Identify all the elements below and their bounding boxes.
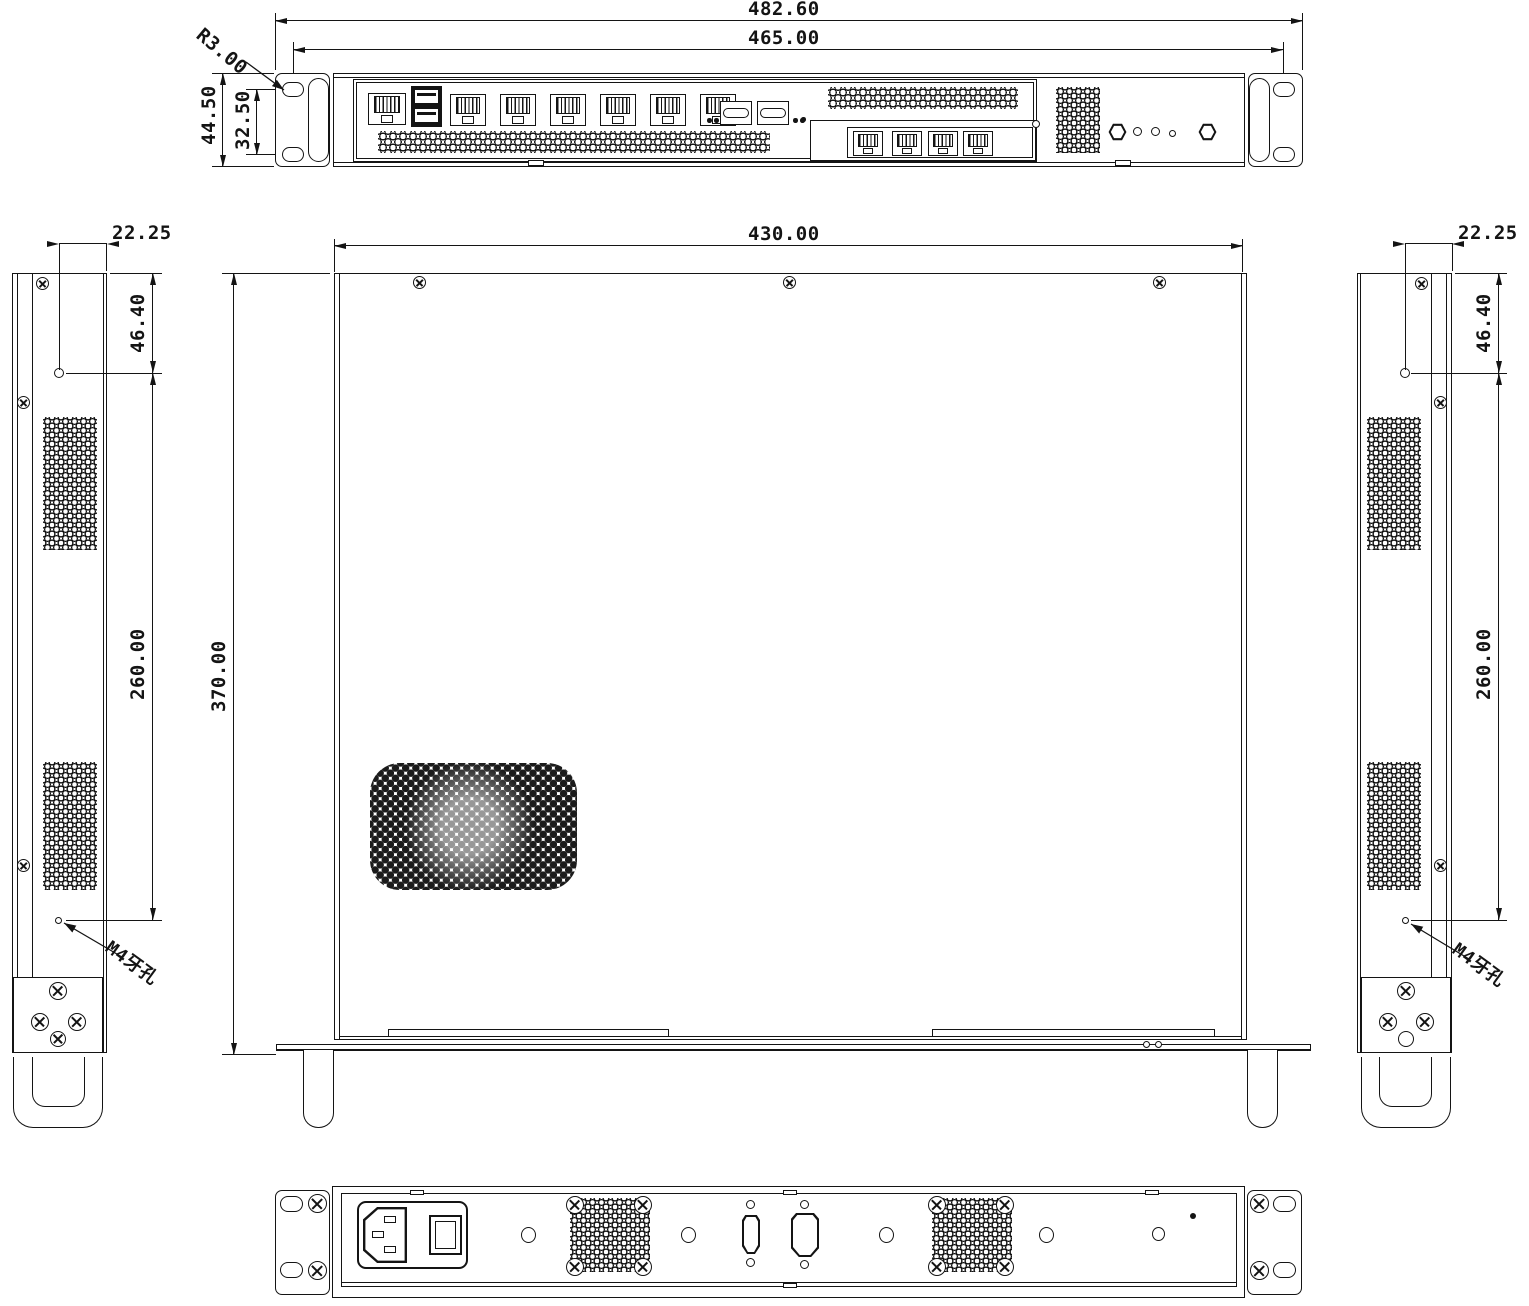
dim-offset: 22.25 — [1458, 222, 1518, 244]
grille-screw — [928, 1258, 946, 1276]
front-honeycomb-vent — [1056, 87, 1100, 153]
front-body-inner-top-line — [334, 77, 1244, 78]
grille-screw — [566, 1258, 584, 1276]
m4-thread-label: M4牙孔 — [101, 934, 165, 990]
panel-tab — [783, 1283, 797, 1288]
panel-tab — [1115, 160, 1131, 166]
standoff-hole — [800, 1260, 809, 1269]
extension-line — [1405, 243, 1406, 370]
dim-arrow — [150, 908, 156, 920]
dim-arrow — [1271, 47, 1283, 53]
dim-line-front-hole — [152, 273, 153, 373]
console-cutout-small — [742, 1215, 760, 1254]
m4-thread-hole-rear — [55, 917, 62, 924]
ear-handle-slot — [308, 78, 329, 162]
rj45-expansion-port-1 — [853, 131, 883, 156]
status-led — [1151, 127, 1160, 136]
front-flange-bottom-line — [276, 1049, 1311, 1051]
extension-line — [275, 13, 276, 70]
side-fold-line — [1446, 274, 1447, 1052]
db9-cutout — [791, 1213, 819, 1257]
extension-line — [66, 373, 162, 374]
ear-screw — [1250, 1261, 1269, 1280]
mount-slot — [282, 82, 304, 97]
thumbscrew-notch — [1032, 120, 1040, 128]
dim-front-hole: 46.40 — [1473, 293, 1495, 353]
side-screw — [17, 396, 30, 409]
side-screw — [1434, 859, 1447, 872]
extension-line — [66, 920, 162, 921]
sfp-cage-1 — [720, 101, 752, 125]
dim-line-offset — [59, 243, 107, 244]
extension-line — [1242, 239, 1243, 272]
dim-arrow — [254, 89, 260, 101]
mount-slot — [1273, 147, 1295, 162]
bracket-screw — [50, 1031, 66, 1047]
dim-arrow — [231, 273, 237, 285]
extension-line — [1452, 243, 1453, 271]
dim-line-overall-width — [275, 20, 1303, 21]
side-fold-line — [17, 274, 18, 1052]
side-screw — [17, 859, 30, 872]
dim-arrow — [150, 361, 156, 373]
dim-arrow — [1496, 273, 1502, 285]
status-led — [1169, 130, 1176, 137]
dim-arrow — [220, 73, 226, 85]
usb-port — [414, 108, 439, 123]
rj45-lan-port-4 — [600, 94, 636, 126]
dim-arrow — [1496, 908, 1502, 920]
bracket-screw — [49, 982, 67, 1000]
rj45-expansion-port-2 — [892, 131, 922, 156]
extension-line — [106, 243, 107, 271]
extension-line — [222, 273, 330, 274]
dim-top-width: 430.00 — [748, 223, 820, 245]
pilot-hole — [1190, 1213, 1196, 1219]
ear-handle-left — [303, 1050, 334, 1128]
sfp-cage-2 — [757, 101, 789, 125]
mount-slot — [280, 1196, 303, 1212]
bracket-hole — [1398, 1031, 1414, 1047]
mount-slot — [1273, 82, 1295, 97]
dim-line-top-depth — [233, 273, 234, 1055]
mount-slot — [280, 1262, 303, 1278]
status-led — [1133, 127, 1142, 136]
side-screw — [36, 277, 49, 290]
top-cover-inner-left-line — [339, 274, 340, 1039]
dim-arrow — [47, 241, 59, 247]
dim-arrow — [275, 18, 287, 24]
dim-mount-span: 465.00 — [748, 27, 820, 49]
bracket-screw — [1416, 1013, 1434, 1031]
ground-hole — [1152, 1227, 1165, 1241]
tab-notch — [1214, 1029, 1215, 1036]
dim-slot-pitch: 32.50 — [232, 90, 254, 150]
tab-notch — [932, 1029, 933, 1036]
ear-handle-right — [1247, 1050, 1278, 1128]
side-vent-upper — [1367, 417, 1421, 550]
engineering-drawing-canvas: 482.60 465.00 R3.00 44.50 32.50 — [0, 0, 1529, 1306]
rj45-lan-port-1 — [450, 94, 486, 126]
mount-slot — [282, 147, 304, 162]
extension-line — [59, 243, 60, 370]
rj45-lan-port-3 — [550, 94, 586, 126]
flange-notch — [1155, 1041, 1162, 1048]
extension-line — [1455, 273, 1507, 274]
dim-line-pitch — [152, 373, 153, 920]
dim-height: 44.50 — [198, 85, 220, 145]
ear-screw — [308, 1261, 327, 1280]
front-body-inner-bottom-line — [334, 162, 1244, 163]
led-dot — [714, 118, 719, 123]
dim-line-pitch — [1498, 373, 1499, 920]
standoff-hole — [800, 1200, 809, 1209]
cover-screw — [413, 276, 426, 289]
dim-arrow — [1496, 361, 1502, 373]
bracket-screw — [1397, 982, 1415, 1000]
side-vent-upper — [43, 417, 97, 550]
rj45-lan-port-5 — [650, 94, 686, 126]
led-dot — [707, 118, 712, 123]
tab-notch — [668, 1029, 669, 1036]
standoff-hole — [746, 1200, 755, 1209]
left-handle-cutout — [32, 1057, 85, 1107]
extension-line — [110, 273, 162, 274]
front-vent-rows — [378, 131, 770, 153]
grille-screw — [634, 1258, 652, 1276]
side-fold-line — [32, 274, 33, 977]
m4-thread-label: M4牙孔 — [1448, 936, 1512, 992]
punched-hole — [879, 1227, 894, 1243]
tab-line — [932, 1029, 1214, 1030]
ear-handle-slot — [1249, 78, 1270, 162]
extension-line — [222, 1054, 276, 1055]
ac-pin — [384, 1246, 396, 1253]
cover-screw — [1153, 276, 1166, 289]
tab-notch — [388, 1029, 389, 1036]
expansion-vent-rows — [828, 87, 1018, 109]
flange-notch — [1143, 1041, 1150, 1048]
dim-line-top-width — [334, 245, 1243, 246]
side-fold-line — [103, 274, 104, 1052]
side-vent-lower — [1367, 762, 1421, 890]
extension-line — [334, 239, 335, 272]
panel-tab — [528, 160, 544, 166]
led-dot — [793, 118, 798, 123]
top-cover — [334, 273, 1247, 1040]
dim-arrow — [150, 373, 156, 385]
extension-line — [212, 166, 274, 167]
grille-screw — [996, 1196, 1014, 1214]
dim-arrow — [293, 47, 305, 53]
dim-arrow — [1393, 241, 1405, 247]
right-side-panel — [1357, 273, 1452, 1053]
side-screw — [1415, 277, 1428, 290]
ac-pin — [384, 1216, 396, 1223]
bracket-screw — [31, 1013, 49, 1031]
rj45-expansion-port-4 — [963, 131, 993, 156]
right-handle-cutout — [1379, 1057, 1432, 1107]
rj45-expansion-port-3 — [928, 131, 958, 156]
dim-arrow — [334, 243, 346, 249]
grille-screw — [566, 1196, 584, 1214]
panel-tab — [410, 1190, 424, 1195]
dim-top-depth: 370.00 — [208, 640, 230, 712]
dim-line-height — [222, 73, 223, 167]
dim-line-mount-span — [293, 49, 1283, 50]
dim-arrow — [1496, 373, 1502, 385]
punched-hole — [1039, 1227, 1054, 1243]
extension-line — [1411, 373, 1507, 374]
mount-slot — [1273, 1196, 1296, 1212]
flange-end-cap — [1310, 1044, 1311, 1050]
dim-line-offset — [1405, 243, 1453, 244]
rear-recessed-panel — [341, 1193, 1237, 1287]
bracket-screw — [68, 1013, 86, 1031]
mount-slot — [1273, 1262, 1296, 1278]
extension-line — [1411, 920, 1507, 921]
bracket-screw — [1379, 1013, 1397, 1031]
dim-overall-width: 482.60 — [748, 0, 820, 20]
grille-screw — [996, 1258, 1014, 1276]
left-side-panel — [12, 273, 107, 1053]
m4-thread-hole-rear — [1402, 917, 1409, 924]
fan-blade-highlight — [370, 763, 577, 890]
ear-screw — [308, 1194, 327, 1213]
grille-screw — [928, 1196, 946, 1214]
punched-hole — [521, 1227, 536, 1243]
side-screw — [1434, 396, 1447, 409]
cover-screw — [783, 276, 796, 289]
side-fold-line — [1360, 274, 1361, 1052]
grille-screw — [634, 1196, 652, 1214]
side-vent-lower — [43, 762, 97, 890]
led-dot — [801, 117, 806, 122]
ac-pin — [372, 1231, 384, 1238]
flange-end-cap — [276, 1044, 277, 1050]
dim-pitch: 260.00 — [127, 628, 149, 700]
power-switch-rocker — [435, 1221, 456, 1249]
dim-offset: 22.25 — [112, 222, 172, 244]
dim-slot-radius: R3.00 — [192, 24, 252, 79]
panel-tab — [1145, 1190, 1159, 1195]
dim-pitch: 260.00 — [1473, 628, 1495, 700]
punched-hole — [681, 1227, 696, 1243]
top-cover-inner-right-line — [1241, 274, 1242, 1039]
rj45-console-port — [368, 93, 406, 125]
dim-arrow — [150, 273, 156, 285]
usb-port — [414, 89, 439, 104]
dim-line-front-hole — [1498, 273, 1499, 373]
side-fold-line — [1431, 274, 1432, 977]
panel-tab — [783, 1190, 797, 1195]
extension-line — [1302, 13, 1303, 70]
tab-line — [388, 1029, 668, 1030]
tab-line — [339, 1036, 1242, 1037]
extension-line — [212, 73, 274, 74]
standoff-hole — [746, 1258, 755, 1267]
ear-screw — [1250, 1194, 1269, 1213]
dim-front-hole: 46.40 — [127, 293, 149, 353]
rj45-lan-port-2 — [500, 94, 536, 126]
